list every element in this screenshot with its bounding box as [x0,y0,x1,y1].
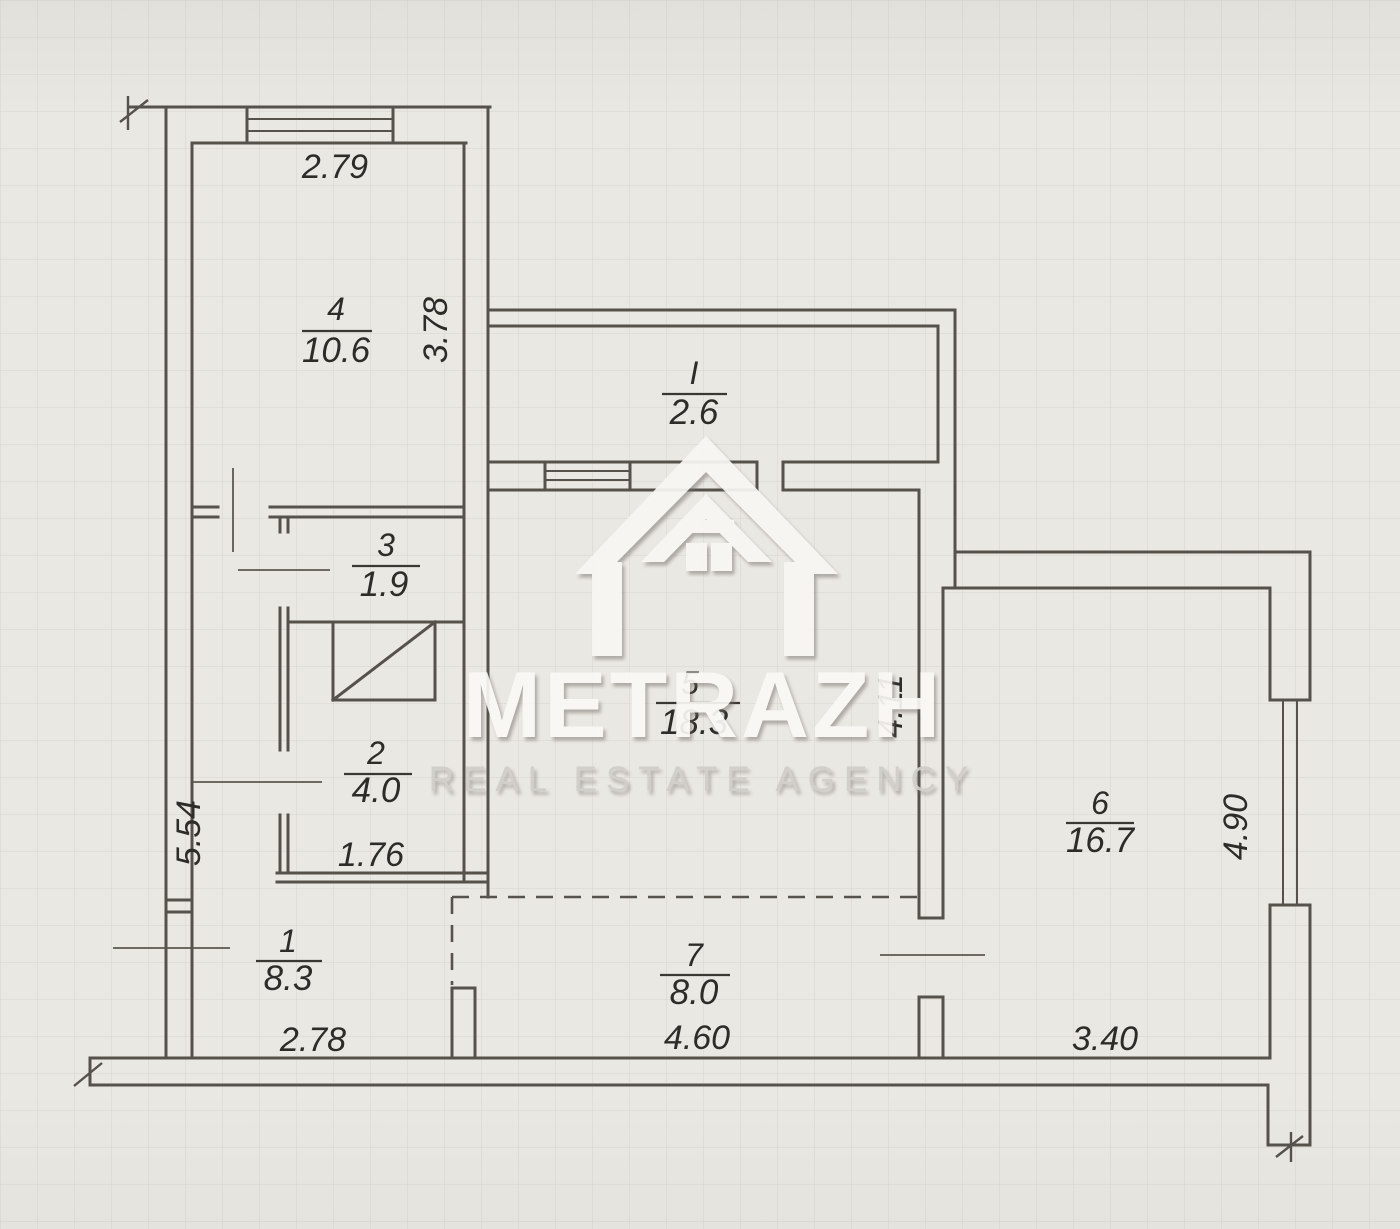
window-dash [686,520,734,533]
dim-hall-height: 5.54 [170,800,208,866]
window-square-right [711,543,732,571]
right-pillar [784,562,814,656]
room-1-area: 8.3 [264,959,313,998]
left-pillar [592,562,622,656]
dim-room2-width: 1.76 [338,836,404,874]
room-I-number: I [690,355,699,391]
room-6-number: 6 [1091,785,1109,821]
room-2-area: 4.0 [352,771,401,810]
dim-bottom-left-width: 2.78 [279,1021,346,1059]
room-6-area: 16.7 [1066,821,1136,860]
dim-bottom-center-width: 4.60 [664,1019,730,1057]
window-square-left [686,543,707,571]
room-2-number: 2 [366,735,385,771]
floorplan-drawing: 4 10.6 I 2.6 3 1.9 2 4.0 5 18.3 6 16.7 [0,0,1400,1229]
room-3-number: 3 [377,527,395,563]
dim-bottom-right-width: 3.40 [1072,1020,1138,1058]
dim-room6-height: 4.90 [1217,794,1255,860]
dim-room4-width: 2.79 [301,148,368,186]
room-I-area: 2.6 [669,393,719,432]
room-1-number: 1 [279,923,297,959]
room-7-area: 8.0 [670,973,719,1012]
room-4-number: 4 [327,291,345,327]
watermark-brand-text: METRAZH [463,652,944,757]
room-3-area: 1.9 [360,565,409,604]
dim-room4-height: 3.78 [417,297,455,363]
room-7-number: 7 [685,937,704,973]
room-4-area: 10.6 [302,331,371,370]
floorplan-photo: 4 10.6 I 2.6 3 1.9 2 4.0 5 18.3 6 16.7 [0,0,1400,1229]
watermark-tagline-text: REAL ESTATE AGENCY [429,760,977,799]
